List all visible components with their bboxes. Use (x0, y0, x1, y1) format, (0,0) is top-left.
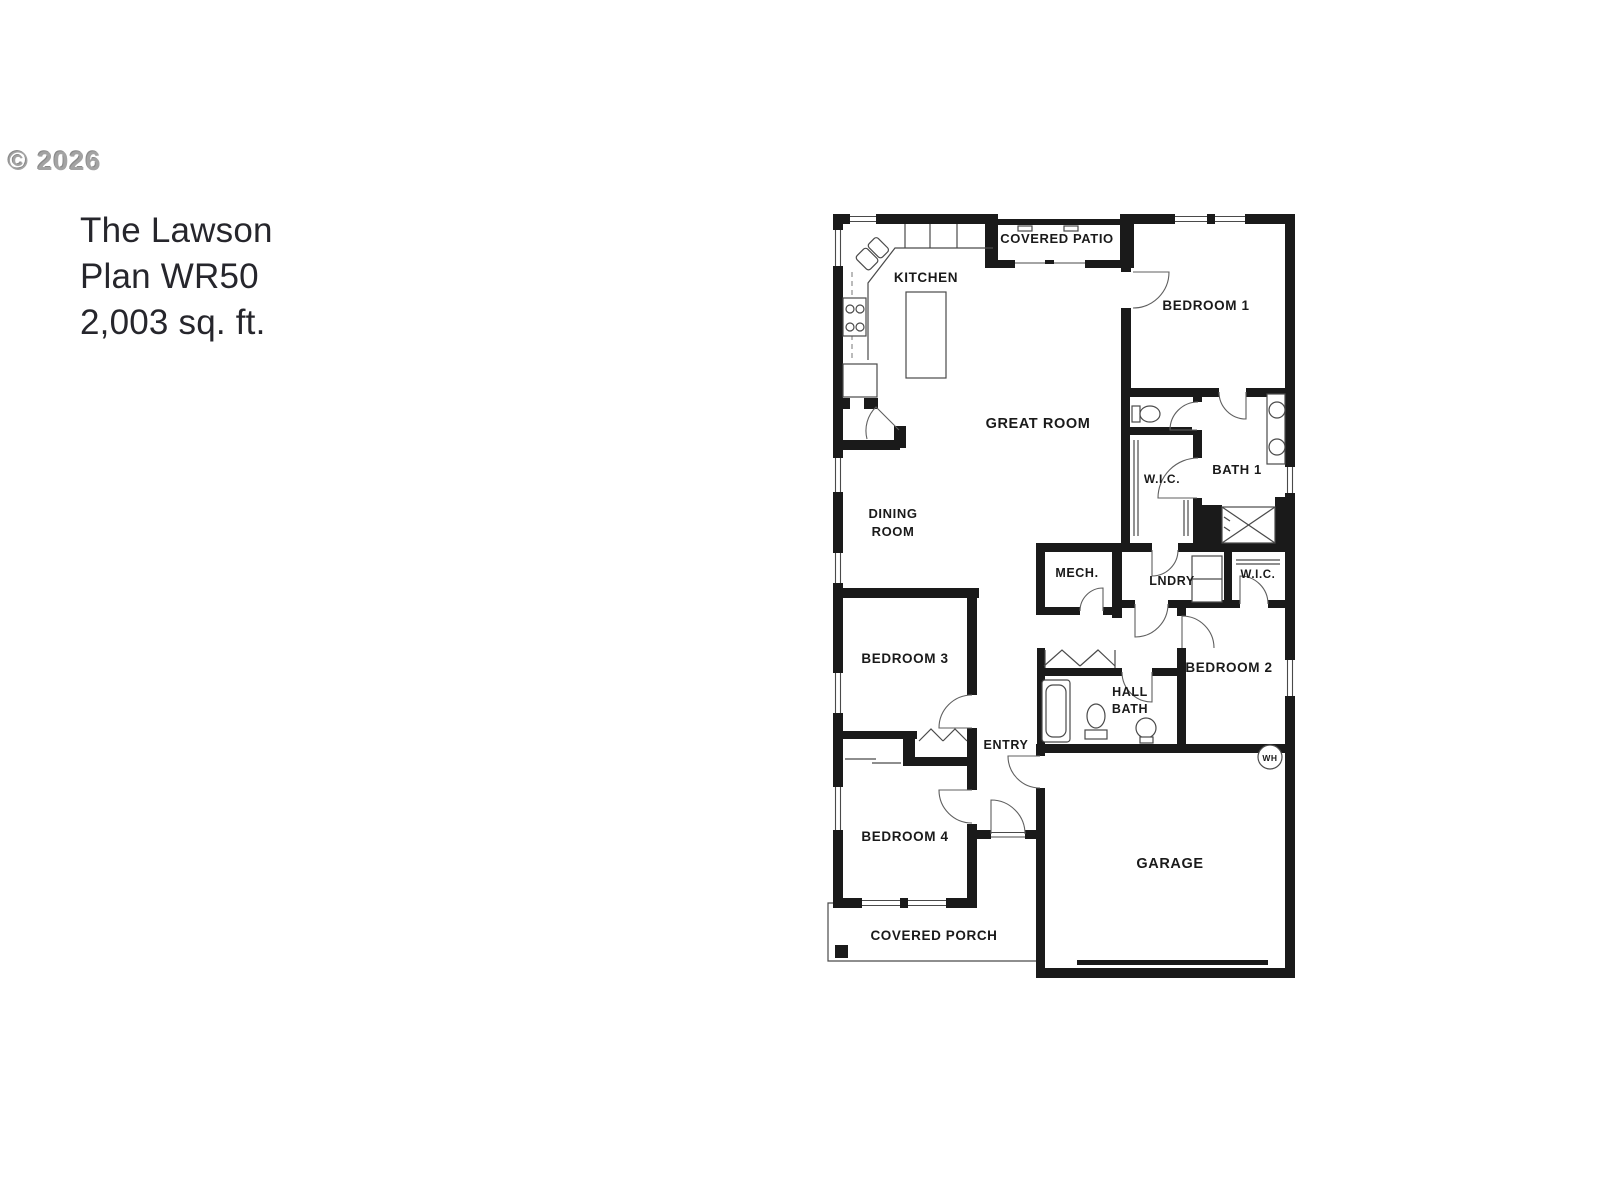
toilet-bowl-hall-bath (1087, 704, 1105, 728)
room-label-wic-bedroom2: W.I.C. (1241, 569, 1276, 581)
toilet-tank-primary (1132, 406, 1140, 422)
toilet-tank-hall-bath (1085, 730, 1107, 739)
kitchen-fixtures (843, 224, 993, 397)
room-label-wic-primary: W.I.C. (1144, 472, 1180, 486)
room-label-entry: ENTRY (984, 738, 1029, 752)
laundry-wic-door-swing (1152, 550, 1178, 576)
room-label-bedroom2: BEDROOM 2 (1185, 660, 1272, 675)
room-label-mech: MECH. (1055, 566, 1098, 580)
sink-bath1-a (1269, 402, 1285, 418)
floorplan-page: © 2026 The Lawson Plan WR50 2,003 sq. ft… (0, 0, 1600, 1200)
garage-door (1077, 960, 1268, 965)
room-label-laundry: LNDRY (1149, 574, 1195, 588)
walls (833, 214, 1295, 978)
room-label-great-room: GREAT ROOM (986, 416, 1091, 432)
refrigerator-fixture (843, 364, 877, 397)
coat-closet-bifold (1044, 650, 1115, 666)
room-label-kitchen: KITCHEN (894, 270, 958, 285)
toilet-bowl-primary (1140, 406, 1160, 422)
room-label-dining-line2: ROOM (872, 524, 915, 539)
room-label-hall-bath-line2: BATH (1112, 702, 1148, 716)
room-label-covered-patio: COVERED PATIO (1000, 231, 1114, 246)
room-label-bedroom4: BEDROOM 4 (861, 829, 948, 844)
room-label-covered-porch: COVERED PORCH (870, 928, 997, 943)
room-label-bedroom3: BEDROOM 3 (861, 651, 948, 666)
sink-bath1-b (1269, 439, 1285, 455)
room-label-garage: GARAGE (1136, 856, 1203, 872)
room-label-bath1: BATH 1 (1212, 462, 1262, 477)
kitchen-island (906, 292, 946, 378)
front-door-swing (991, 800, 1025, 834)
room-label-hall-bath-line1: HALL (1112, 685, 1148, 699)
porch-post (835, 945, 848, 958)
room-label-dining-line1: DINING (868, 506, 917, 521)
floorplan-drawing: WH KITCHEN COVERED PATIO BEDROOM 1 GREAT… (0, 0, 1600, 1200)
water-heater: WH (1258, 745, 1282, 769)
kitchen-sink-fixture (855, 236, 890, 271)
bedroom3-closet-bifold (919, 729, 967, 741)
water-heater-label: WH (1262, 753, 1277, 763)
room-label-bedroom1: BEDROOM 1 (1162, 298, 1249, 313)
sink-hall-bath (1136, 718, 1156, 738)
